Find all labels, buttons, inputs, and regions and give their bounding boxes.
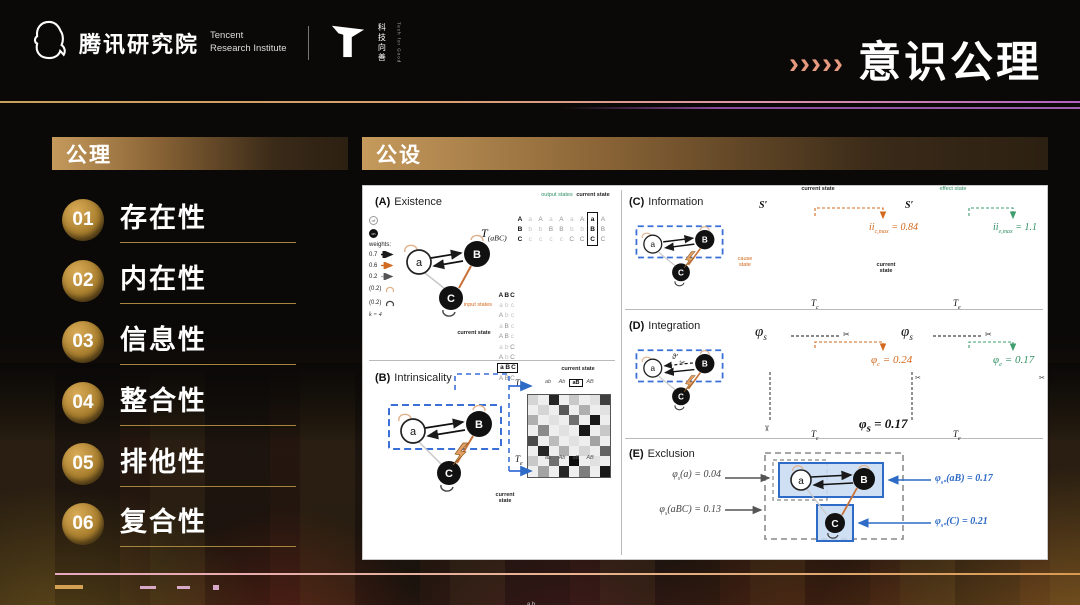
lg-c: c bbox=[510, 312, 516, 319]
matrix-cell bbox=[538, 395, 548, 405]
matrix-cell bbox=[528, 436, 538, 446]
lg-c: b bbox=[535, 226, 545, 233]
noise-lightning-icon bbox=[684, 376, 695, 392]
lg-c: B bbox=[598, 226, 608, 233]
svg-text:C: C bbox=[678, 392, 684, 401]
matrix-cell bbox=[528, 456, 538, 466]
matrix-cell bbox=[528, 466, 538, 476]
item-underline bbox=[120, 486, 296, 487]
network-b: a B C bbox=[379, 391, 509, 506]
item-underline bbox=[120, 425, 296, 426]
matrix-cell bbox=[600, 446, 610, 456]
matrix-cell bbox=[538, 436, 548, 446]
te-symbol: Te bbox=[515, 454, 523, 467]
lg-c: C bbox=[587, 236, 597, 243]
sidebar-item-intrinsicality: 02 内在性 bbox=[62, 257, 296, 304]
lg-c: A bbox=[535, 216, 545, 223]
item-number-badge: 06 bbox=[62, 503, 104, 545]
matrix-cell bbox=[579, 425, 589, 435]
c-tc-label: Tc bbox=[811, 298, 819, 311]
divider-d-e bbox=[625, 438, 1043, 439]
slide: 腾讯研究院 Tencent Research Institute 科技向善 Te… bbox=[0, 0, 1080, 605]
matrix-cell bbox=[569, 425, 579, 435]
matrix-cell bbox=[569, 436, 579, 446]
matrix-cell bbox=[590, 415, 600, 425]
matrix-cell bbox=[600, 405, 610, 415]
sidebar-title-bar: 公理 bbox=[52, 137, 348, 170]
matrix-cell bbox=[569, 415, 579, 425]
phi-a-value: φs(a) = 0.04 bbox=[625, 469, 721, 482]
sidebar-title: 公理 bbox=[66, 139, 112, 169]
lg-c: c bbox=[556, 236, 566, 243]
cell-text: C bbox=[510, 292, 516, 299]
header-divider-line bbox=[0, 101, 1080, 103]
phi-cause-value: φc = 0.24 bbox=[871, 354, 912, 368]
lg-c: B bbox=[546, 226, 556, 233]
cell-text: aB bbox=[569, 455, 583, 461]
tpm-symbol: T(aBC) bbox=[481, 226, 507, 242]
footer-divider-line bbox=[55, 573, 1080, 575]
main-title-bar: 公设 bbox=[362, 137, 1048, 170]
cause-state-label: cause state bbox=[731, 256, 759, 269]
penguin-logo-icon bbox=[30, 18, 68, 67]
org-name-en: Tencent Research Institute bbox=[210, 30, 287, 55]
phi-s-total-value: φs = 0.17 bbox=[859, 416, 908, 435]
item-underline bbox=[120, 303, 296, 304]
matrix-cell bbox=[590, 425, 600, 435]
matrix-cell bbox=[549, 415, 559, 425]
item-label: 内在性 bbox=[120, 264, 207, 294]
lg-c: c bbox=[510, 333, 516, 340]
s-prime-effect: S′ bbox=[905, 200, 913, 211]
matrix-cell bbox=[538, 405, 548, 415]
sidebar-item-composition: 06 复合性 bbox=[62, 500, 296, 547]
matrix-cell bbox=[600, 456, 610, 466]
lg-c: C bbox=[510, 354, 516, 361]
sidebar-item-existence: 01 存在性 bbox=[62, 196, 296, 243]
current-state-label-left: current state bbox=[455, 330, 493, 336]
lg-c: C bbox=[567, 236, 577, 243]
noise-lightning-icon bbox=[684, 252, 695, 268]
matrix-cell bbox=[549, 436, 559, 446]
matrix-cell bbox=[528, 425, 538, 435]
svg-text:a: a bbox=[650, 364, 655, 373]
current-state-label-b-top: current state bbox=[561, 366, 595, 372]
lg-c: C bbox=[510, 344, 516, 351]
matrix-cell bbox=[590, 395, 600, 405]
matrix-cell bbox=[600, 425, 610, 435]
rs-row: ab bbox=[525, 598, 537, 605]
panel-b-title: (B)Intrinsicality bbox=[375, 368, 452, 386]
matrix-cell bbox=[579, 466, 589, 476]
te-col-labels: abAbaBAB bbox=[541, 455, 597, 461]
rs-row: ABc bbox=[497, 332, 516, 342]
phi-ab-value: φs*(aB) = 0.17 bbox=[935, 473, 993, 486]
svg-text:B: B bbox=[473, 249, 481, 261]
footer-dash-pink-1 bbox=[140, 586, 156, 589]
matrix-cell bbox=[528, 446, 538, 456]
tpm-matrix bbox=[527, 394, 611, 478]
phi-s-symbol-cause: φs bbox=[755, 324, 767, 342]
lg-c: B bbox=[587, 226, 597, 233]
effect-state-label: effect state bbox=[931, 186, 975, 192]
matrix-cell bbox=[549, 466, 559, 476]
svg-text:B: B bbox=[702, 360, 708, 369]
c-te-label: Te bbox=[953, 298, 961, 311]
lg-c: A bbox=[598, 216, 608, 223]
rs-row: ABC bbox=[497, 373, 516, 383]
item-label: 排他性 bbox=[120, 447, 207, 477]
matrix-cell bbox=[579, 395, 589, 405]
matrix-cell bbox=[600, 415, 610, 425]
matrix-cell bbox=[579, 405, 589, 415]
lg-c: c bbox=[525, 236, 535, 243]
lg-c: b bbox=[525, 226, 535, 233]
rs-row: aBC bbox=[497, 363, 518, 373]
matrix-cell bbox=[590, 466, 600, 476]
tc-row-labels: abAbaBAB bbox=[525, 598, 1080, 605]
item-label: 信息性 bbox=[120, 325, 207, 355]
sidebar-item-integration: 04 整合性 bbox=[62, 379, 296, 426]
item-label: 复合性 bbox=[120, 507, 207, 537]
scissors-icon: ✂ bbox=[915, 374, 921, 382]
svg-text:✂: ✂ bbox=[680, 358, 686, 367]
scissors-icon: ✂ bbox=[762, 425, 771, 432]
lg-c: A bbox=[577, 216, 587, 223]
sidebar-item-exclusion: 05 排他性 bbox=[62, 440, 296, 487]
phi-c-only-value: φs*(C) = 0.21 bbox=[935, 516, 988, 529]
item-label: 整合性 bbox=[120, 386, 207, 416]
lg-lab: A bbox=[515, 216, 525, 223]
current-state-label-top: current state bbox=[569, 192, 617, 198]
item-number-badge: 04 bbox=[62, 382, 104, 424]
matrix-cell bbox=[559, 436, 569, 446]
rs-row: AbC bbox=[497, 352, 516, 362]
svg-text:ϑ′: ϑ′ bbox=[672, 352, 678, 361]
lg-c: A bbox=[556, 216, 566, 223]
matrix-cell bbox=[590, 405, 600, 415]
matrix-cell bbox=[579, 436, 589, 446]
svg-text:B: B bbox=[860, 475, 867, 486]
lg-row: BbbBBbbBB bbox=[515, 224, 1080, 234]
rs-row: abC bbox=[497, 342, 516, 352]
d-tc-label: Tc bbox=[811, 429, 819, 442]
cell-text: AB bbox=[583, 455, 597, 461]
matrix-cell bbox=[600, 395, 610, 405]
lg-row: CccccCCCC bbox=[515, 234, 1080, 244]
scissors-icon: ✂ bbox=[1039, 374, 1045, 382]
tfg-vertical-text: 科技向善 bbox=[377, 23, 386, 63]
lg-c: b bbox=[531, 601, 536, 605]
sidebar-item-information: 03 信息性 bbox=[62, 318, 296, 365]
phi-abc-value: φs(aBC) = 0.13 bbox=[613, 504, 721, 517]
lg-c: a bbox=[546, 216, 556, 223]
lg-c: C bbox=[511, 364, 517, 371]
rs-h: ABC bbox=[497, 290, 1080, 300]
cell-text: aB bbox=[569, 379, 583, 387]
t-flag-logo-icon bbox=[330, 21, 366, 64]
current-state-label-b-left: current state bbox=[491, 492, 519, 505]
matrix-cell bbox=[559, 405, 569, 415]
matrix-cell bbox=[559, 395, 569, 405]
lg-c: b bbox=[567, 226, 577, 233]
matrix-cell bbox=[549, 405, 559, 415]
figure-card: (A)Existence off on weights: 0.7 0.6 0.2… bbox=[362, 185, 1048, 560]
rs-row: abc bbox=[497, 300, 516, 310]
cell-text: Ab bbox=[555, 455, 569, 461]
lg-lab: B bbox=[515, 226, 525, 233]
page-title: 意识公理 bbox=[858, 42, 1042, 85]
footer-dash-pink-3 bbox=[213, 585, 219, 590]
phi-s-symbol-effect: φs bbox=[901, 324, 913, 342]
cell-text: ab bbox=[541, 379, 555, 387]
title-block: ››››› 意识公理 bbox=[789, 42, 1042, 85]
footer-dash-gold bbox=[55, 585, 83, 589]
matrix-cell bbox=[528, 405, 538, 415]
cell-text: ab bbox=[541, 455, 555, 461]
main-title: 公设 bbox=[376, 139, 422, 169]
matrix-cell bbox=[569, 466, 579, 476]
lg-c: b bbox=[577, 226, 587, 233]
panel-e-title: (E)Exclusion bbox=[629, 444, 695, 462]
lg-c: c bbox=[535, 236, 545, 243]
off-state-icon: off bbox=[369, 216, 378, 225]
phi-effect-value: φe = 0.17 bbox=[993, 354, 1034, 368]
scissors-icon: ✂ bbox=[843, 330, 850, 339]
org-logo-block: 腾讯研究院 Tencent Research Institute 科技向善 Te… bbox=[30, 18, 401, 67]
matrix-cell bbox=[538, 425, 548, 435]
svg-text:C: C bbox=[445, 468, 453, 480]
matrix-cell bbox=[559, 466, 569, 476]
tc-symbol: Tc bbox=[515, 378, 523, 391]
rs-row: Abc bbox=[497, 311, 516, 321]
item-underline bbox=[120, 242, 296, 243]
lg-lab: C bbox=[515, 236, 525, 243]
matrix-cell bbox=[590, 436, 600, 446]
matrix-cell bbox=[528, 395, 538, 405]
footer-dash-pink-2 bbox=[177, 586, 190, 589]
matrix-cell bbox=[579, 415, 589, 425]
matrix-cell bbox=[569, 395, 579, 405]
input-states-label: input states bbox=[461, 302, 495, 308]
network-d: ϑ′ ✂ a B C bbox=[629, 340, 733, 420]
s-prime-cause: S′ bbox=[759, 200, 767, 211]
matrix-cell bbox=[600, 466, 610, 476]
svg-text:a: a bbox=[410, 426, 417, 438]
matrix-cell bbox=[569, 405, 579, 415]
lg-row: AaAaAaAaA bbox=[515, 214, 1080, 224]
org-name-cn: 腾讯研究院 bbox=[79, 27, 199, 59]
item-underline bbox=[120, 546, 296, 547]
item-number-badge: 03 bbox=[62, 321, 104, 363]
matrix-cell bbox=[528, 415, 538, 425]
svg-text:C: C bbox=[678, 268, 684, 277]
network-e: a B C bbox=[761, 449, 907, 545]
matrix-cell bbox=[549, 425, 559, 435]
item-underline bbox=[120, 364, 296, 365]
lg-c: a bbox=[525, 216, 535, 223]
svg-text:C: C bbox=[447, 293, 455, 305]
matrix-cell bbox=[559, 415, 569, 425]
lg-c: c bbox=[546, 236, 556, 243]
item-number-badge: 05 bbox=[62, 443, 104, 485]
scissors-icon: ✂ bbox=[985, 330, 992, 339]
logo-divider bbox=[308, 26, 309, 60]
on-state-icon: on bbox=[369, 229, 378, 238]
lg-c: B bbox=[556, 226, 566, 233]
matrix-cell bbox=[600, 436, 610, 446]
lg-c: a bbox=[567, 216, 577, 223]
matrix-cell bbox=[538, 466, 548, 476]
matrix-cell bbox=[549, 395, 559, 405]
cell-text: AB bbox=[583, 379, 597, 387]
lg-c: c bbox=[510, 323, 516, 330]
panel-a-title: (A)Existence bbox=[375, 192, 442, 210]
matrix-cell bbox=[559, 425, 569, 435]
item-label: 存在性 bbox=[120, 203, 207, 233]
current-state-c-left: current state bbox=[871, 262, 901, 275]
rs-row: aBc bbox=[497, 321, 516, 331]
lg-c: C bbox=[598, 236, 608, 243]
tc-col-labels: abAbaBAB bbox=[541, 379, 597, 387]
panel-d-title: (D)Integration bbox=[629, 316, 700, 334]
matrix-cell bbox=[538, 415, 548, 425]
tfg-en-text: Tech for Good bbox=[396, 22, 401, 63]
lg-c: C bbox=[577, 236, 587, 243]
lg-c: a bbox=[587, 216, 597, 223]
panel-a-colgrid: AaAaAaAaABbbBBbbBBCccccCCCC bbox=[515, 214, 1080, 244]
d-te-label: Te bbox=[953, 429, 961, 442]
svg-text:a: a bbox=[798, 476, 804, 487]
svg-text:C: C bbox=[831, 519, 838, 530]
lg-c: c bbox=[510, 302, 516, 309]
svg-text:B: B bbox=[475, 419, 483, 431]
item-number-badge: 02 bbox=[62, 260, 104, 302]
svg-text:a: a bbox=[416, 257, 423, 269]
cell-text: Ab bbox=[555, 379, 569, 387]
item-number-badge: 01 bbox=[62, 199, 104, 241]
panel-c-title: (C)Information bbox=[629, 192, 703, 210]
chevron-right-icon: ››››› bbox=[789, 49, 844, 79]
current-state-c-top: current state bbox=[795, 186, 841, 192]
header-divider-line-2 bbox=[562, 107, 1080, 109]
